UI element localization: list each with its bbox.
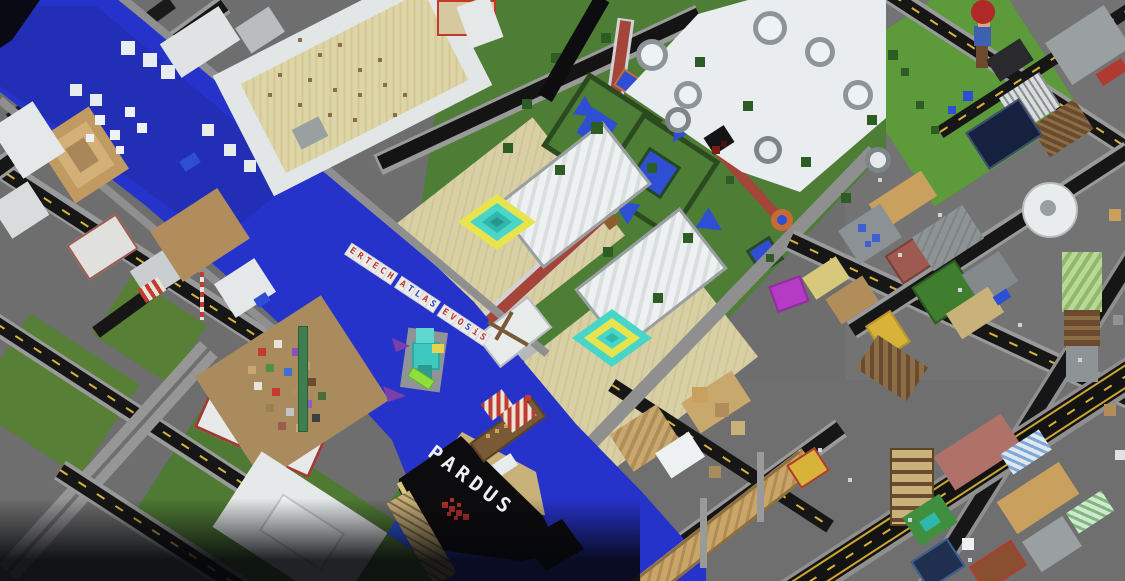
village-buildings (254, 382, 262, 390)
ship-deck-planks (486, 434, 490, 438)
maze-bushes (378, 58, 382, 62)
castle-tower-6 (759, 141, 777, 159)
castle-tower-3 (758, 16, 782, 40)
park-trees (931, 126, 939, 134)
castle-tower-1 (641, 44, 663, 66)
village-buildings (318, 392, 326, 400)
maze-bushes (358, 68, 362, 72)
street-lamps (938, 213, 942, 217)
tower-green-roof (1062, 252, 1102, 312)
dock-boats (244, 160, 256, 172)
snowy-trees (95, 115, 105, 125)
park-trees (591, 122, 603, 134)
bottom-shadow-fade (0, 498, 640, 581)
maze-bushes (403, 93, 407, 97)
village-buildings (248, 366, 256, 374)
village-buildings (274, 340, 282, 348)
maze-bushes (268, 93, 272, 97)
maze-bushes (333, 88, 337, 92)
tower-green-base (1066, 346, 1098, 382)
village-buildings (258, 348, 266, 356)
bridge-tower-a (700, 498, 707, 568)
park-trees (743, 101, 753, 111)
village-buildings (284, 368, 292, 376)
ship-flag (525, 395, 531, 401)
park-trees (695, 57, 705, 67)
barber-pole (200, 272, 204, 320)
castle-tower-7 (848, 85, 868, 105)
snowy-trees (137, 123, 147, 133)
park-trees (603, 247, 613, 257)
castle-fountain-water (777, 215, 787, 225)
maze-bushes (358, 93, 362, 97)
village-buildings (312, 414, 320, 422)
park-trees (901, 68, 909, 76)
snowy-trees (116, 146, 124, 154)
tower-green-mid (1064, 310, 1100, 348)
pond-bits-tr (963, 91, 973, 101)
village-buildings (286, 408, 294, 416)
dock-boats (70, 84, 82, 96)
street-lamps (898, 253, 902, 257)
dock-boats (224, 144, 236, 156)
maze-bushes (298, 103, 302, 107)
maze-bushes (393, 113, 397, 117)
park-trees (867, 115, 877, 125)
maze-bushes (328, 113, 332, 117)
edge-buildings-right (1109, 209, 1121, 221)
park-trees (522, 99, 532, 109)
edge-buildings-right (1113, 315, 1123, 325)
street-lamps (1018, 323, 1022, 327)
street-lamps (818, 448, 822, 452)
building-r-stone-blue-bits (872, 234, 880, 242)
park-trees (647, 163, 657, 173)
castle-gate-portal (721, 141, 727, 147)
snowy-trees (110, 130, 120, 140)
houses-bc (731, 421, 745, 435)
giant-statue-cyan-head (416, 328, 434, 343)
castle-tower-2 (679, 86, 697, 104)
maze-bushes (278, 73, 282, 77)
dock-boats (90, 94, 102, 106)
edge-buildings-right (1104, 404, 1116, 416)
park-trees (766, 254, 774, 262)
street-lamps (908, 518, 912, 522)
street-lamps (958, 288, 962, 292)
village-buildings (308, 378, 316, 386)
park-trees (726, 176, 734, 184)
map-viewport[interactable]: PARDUSERTECHATLASEVOSiS (0, 0, 1125, 581)
houses-bc (709, 466, 721, 478)
village-buildings (266, 364, 274, 372)
giant-statue-red-hair (971, 0, 995, 24)
edge-buildings-right (1115, 450, 1125, 460)
park-trees (888, 50, 898, 60)
street-lamps (848, 478, 852, 482)
castle-tower-8 (870, 152, 886, 168)
street-lamps (968, 558, 972, 562)
park-trees (916, 101, 924, 109)
building-r-stone-blue-bits (858, 224, 866, 232)
dock-boats (202, 124, 214, 136)
giant-statue-red-legs (976, 44, 988, 68)
park-trees (841, 193, 851, 203)
street-lamps (1078, 358, 1082, 362)
dock-boats (121, 41, 135, 55)
park-trees (801, 157, 811, 167)
maze-bushes (383, 83, 387, 87)
giant-statue-red-body (974, 26, 991, 46)
village-buildings (272, 388, 280, 396)
giant-statue-item (432, 344, 444, 353)
snowy-trees (125, 107, 135, 117)
castle-gate-portal (712, 146, 720, 154)
dock-boats (161, 65, 175, 79)
bridge-tower-b (757, 452, 764, 522)
dock-boats (143, 53, 157, 67)
castle-tower-5 (670, 112, 686, 128)
park-trees (601, 33, 611, 43)
tent-br-white (962, 538, 974, 550)
park-trees (555, 165, 565, 175)
street-lamps (878, 178, 882, 182)
snowy-trees (86, 134, 94, 142)
maze-bushes (353, 118, 357, 122)
park-trees (653, 293, 663, 303)
tower-round-white-core (1040, 200, 1056, 216)
maze-bushes (298, 38, 302, 42)
village-buildings (278, 422, 286, 430)
ship-deck-planks (495, 429, 499, 433)
maze-bushes (318, 53, 322, 57)
houses-bc (715, 403, 729, 417)
park-trees (683, 233, 693, 243)
village-green-tower (298, 326, 308, 432)
castle-tower-4 (810, 42, 830, 62)
maze-bushes (308, 78, 312, 82)
maze-bushes (338, 43, 342, 47)
pond-bits-tr (948, 106, 956, 114)
houses-bc (692, 387, 708, 403)
village-buildings (266, 404, 274, 412)
building-r-stone-blue-bits (865, 241, 871, 247)
park-trees (503, 143, 513, 153)
